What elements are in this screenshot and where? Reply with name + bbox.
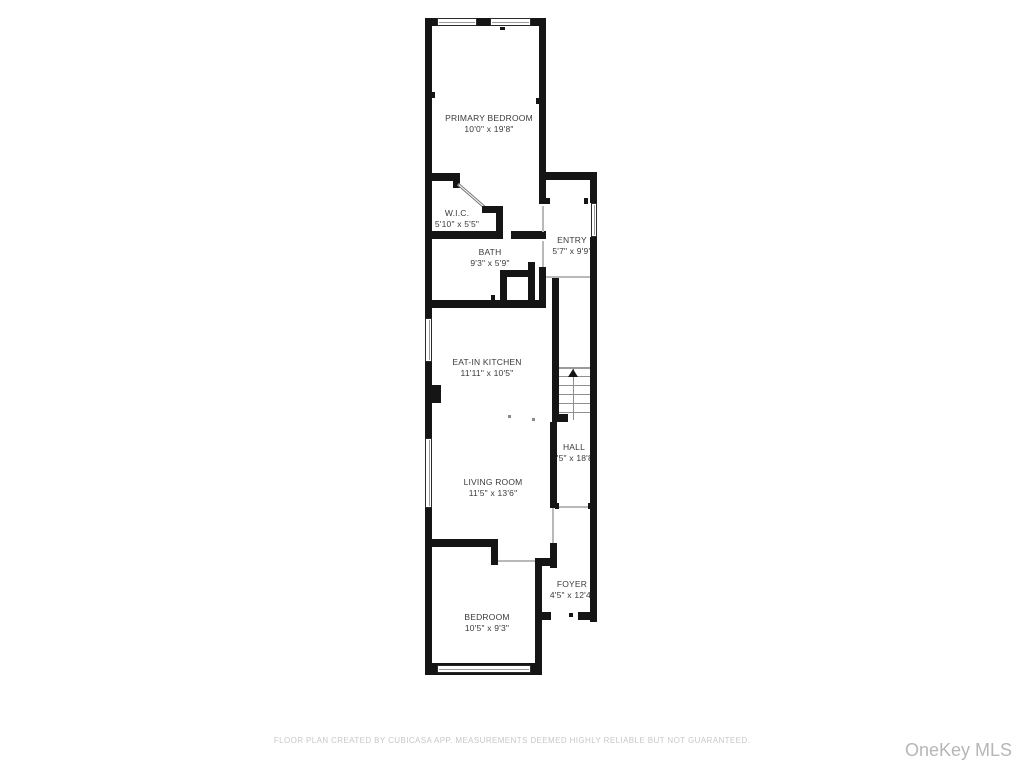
wall-tick (532, 418, 535, 421)
room-name: FOYER (550, 579, 594, 590)
wall (511, 231, 546, 239)
window (437, 665, 531, 673)
wall (539, 180, 546, 204)
wall (425, 539, 498, 547)
room-label-bath: BATH 9'3" x 5'9" (470, 247, 509, 269)
wall (425, 173, 460, 181)
room-name: EAT-IN KITCHEN (452, 357, 521, 368)
room-dimensions: 11'5" x 13'6" (464, 488, 523, 499)
wall (539, 172, 597, 180)
room-label-living-room: LIVING ROOM 11'5" x 13'6" (464, 477, 523, 499)
room-name: PRIMARY BEDROOM (445, 113, 533, 124)
wall (552, 278, 559, 422)
room-label-primary-bedroom: PRIMARY BEDROOM 10'0" x 19'8" (445, 113, 533, 135)
wall-tick (491, 295, 495, 300)
stair-tread (559, 412, 590, 413)
room-label-foyer: FOYER 4'5" x 12'4" (550, 579, 594, 601)
staircase (559, 367, 590, 420)
wall (590, 237, 597, 622)
wall-tick (432, 92, 435, 98)
room-dimensions: 11'11" x 10'5" (452, 368, 521, 379)
room-label-entry: ENTRY 5'7" x 9'9" (552, 235, 591, 257)
room-label-bedroom: BEDROOM 10'5" x 9'3" (464, 612, 509, 634)
window (425, 318, 432, 362)
room-dimensions: 9'3" x 5'9" (470, 258, 509, 269)
room-dimensions: 4'5" x 12'4" (550, 590, 594, 601)
stair-tread (559, 394, 590, 395)
room-opening (498, 560, 535, 562)
watermark-onekey-mls: OneKey MLS (905, 740, 1012, 761)
wall (539, 18, 546, 180)
room-label-eat-in-kitchen: EAT-IN KITCHEN 11'11" x 10'5" (452, 357, 521, 379)
door-opening (542, 241, 544, 267)
wall-tick (508, 415, 511, 418)
wall (552, 414, 568, 422)
window (425, 438, 432, 508)
window (490, 18, 531, 26)
wall (425, 300, 546, 308)
wall-tick (555, 503, 559, 509)
wall (578, 612, 597, 620)
wall (590, 172, 597, 203)
room-name: BEDROOM (464, 612, 509, 623)
wall-tick (536, 98, 539, 104)
room-opening (557, 506, 590, 508)
disclaimer-text: FLOOR PLAN CREATED BY CUBICASA APP. MEAS… (0, 736, 1024, 745)
room-name: W.I.C. (435, 208, 479, 219)
wall-tick (588, 503, 592, 509)
floor-plan: PRIMARY BEDROOM 10'0" x 19'8" W.I.C. 5'1… (0, 0, 1024, 768)
stair-tread (559, 385, 590, 386)
door-opening (542, 206, 544, 232)
window (437, 18, 477, 26)
wall (491, 539, 498, 565)
wall-tick (569, 613, 573, 617)
wall-tick (584, 198, 588, 204)
room-dimensions: 5'10" x 5'5" (435, 219, 479, 230)
wall (535, 612, 551, 620)
stair-direction-arrow-icon (568, 369, 578, 377)
wall-tick (500, 27, 505, 30)
wall-tick (489, 232, 493, 236)
room-dimensions: 10'5" x 9'3" (464, 623, 509, 634)
room-label-wic: W.I.C. 5'10" x 5'5" (435, 208, 479, 230)
room-dimensions: 5'7" x 9'9" (552, 246, 591, 257)
room-name: BATH (470, 247, 509, 258)
window (591, 203, 597, 237)
wall (550, 422, 557, 508)
room-name: LIVING ROOM (464, 477, 523, 488)
room-name: ENTRY (552, 235, 591, 246)
door-opening (552, 508, 554, 543)
wall-tick (427, 227, 431, 232)
room-dimensions: 10'0" x 19'8" (445, 124, 533, 135)
wall-tick (546, 198, 550, 204)
stair-tread (559, 403, 590, 404)
wall (429, 385, 441, 403)
